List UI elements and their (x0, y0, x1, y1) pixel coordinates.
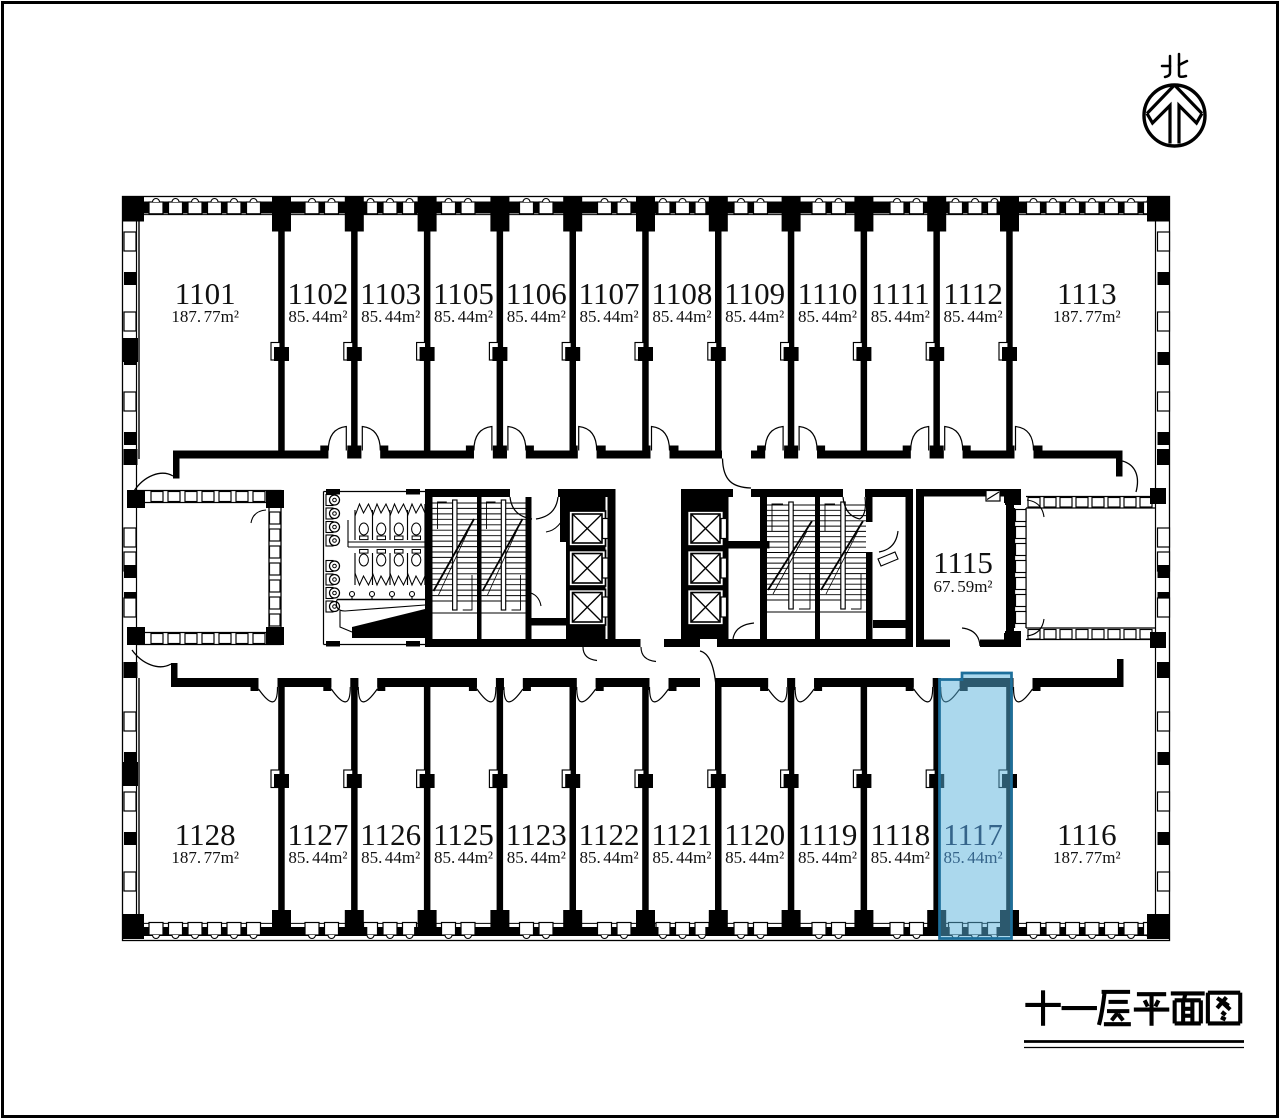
svg-text:85.44m²: 85.44m² (288, 307, 347, 326)
svg-text:85.44m²: 85.44m² (507, 848, 566, 867)
svg-text:85.44m²: 85.44m² (434, 848, 493, 867)
svg-text:85.44m²: 85.44m² (871, 848, 930, 867)
svg-text:1120: 1120 (724, 817, 785, 852)
svg-text:85.44m²: 85.44m² (652, 848, 711, 867)
svg-text:1112: 1112 (943, 276, 1003, 311)
svg-text:85.44m²: 85.44m² (507, 307, 566, 326)
svg-text:67.59m²: 67.59m² (933, 577, 992, 596)
svg-text:1121: 1121 (651, 817, 712, 852)
svg-text:1101: 1101 (175, 276, 236, 311)
svg-text:85.44m²: 85.44m² (725, 848, 784, 867)
svg-text:85.44m²: 85.44m² (361, 848, 420, 867)
svg-text:85.44m²: 85.44m² (798, 848, 857, 867)
svg-text:1102: 1102 (287, 276, 348, 311)
svg-text:1107: 1107 (579, 276, 640, 311)
svg-text:1119: 1119 (798, 817, 858, 852)
svg-text:1105: 1105 (433, 276, 494, 311)
svg-text:1103: 1103 (360, 276, 421, 311)
svg-text:85.44m²: 85.44m² (580, 307, 639, 326)
svg-text:85.44m²: 85.44m² (288, 848, 347, 867)
svg-text:1123: 1123 (506, 817, 567, 852)
svg-text:1108: 1108 (651, 276, 712, 311)
svg-text:187.77m²: 187.77m² (1053, 307, 1121, 326)
svg-text:1126: 1126 (360, 817, 421, 852)
svg-text:85.44m²: 85.44m² (580, 848, 639, 867)
svg-text:1113: 1113 (1057, 276, 1117, 311)
svg-text:1122: 1122 (579, 817, 640, 852)
svg-text:187.77m²: 187.77m² (1053, 848, 1121, 867)
svg-text:187.77m²: 187.77m² (171, 307, 239, 326)
svg-text:85.44m²: 85.44m² (944, 848, 1003, 867)
svg-text:1117: 1117 (943, 817, 1003, 852)
svg-text:187.77m²: 187.77m² (171, 848, 239, 867)
svg-text:1116: 1116 (1057, 817, 1117, 852)
svg-text:1110: 1110 (798, 276, 858, 311)
svg-text:85.44m²: 85.44m² (798, 307, 857, 326)
svg-text:85.44m²: 85.44m² (434, 307, 493, 326)
svg-text:1118: 1118 (870, 817, 930, 852)
svg-text:85.44m²: 85.44m² (944, 307, 1003, 326)
svg-text:1127: 1127 (287, 817, 348, 852)
svg-text:85.44m²: 85.44m² (361, 307, 420, 326)
svg-text:85.44m²: 85.44m² (871, 307, 930, 326)
svg-text:1125: 1125 (433, 817, 494, 852)
svg-text:1115: 1115 (933, 545, 993, 580)
svg-text:85.44m²: 85.44m² (652, 307, 711, 326)
svg-text:1128: 1128 (175, 817, 236, 852)
svg-text:1109: 1109 (724, 276, 785, 311)
svg-text:1111: 1111 (871, 276, 930, 311)
svg-text:1106: 1106 (506, 276, 567, 311)
svg-text:85.44m²: 85.44m² (725, 307, 784, 326)
